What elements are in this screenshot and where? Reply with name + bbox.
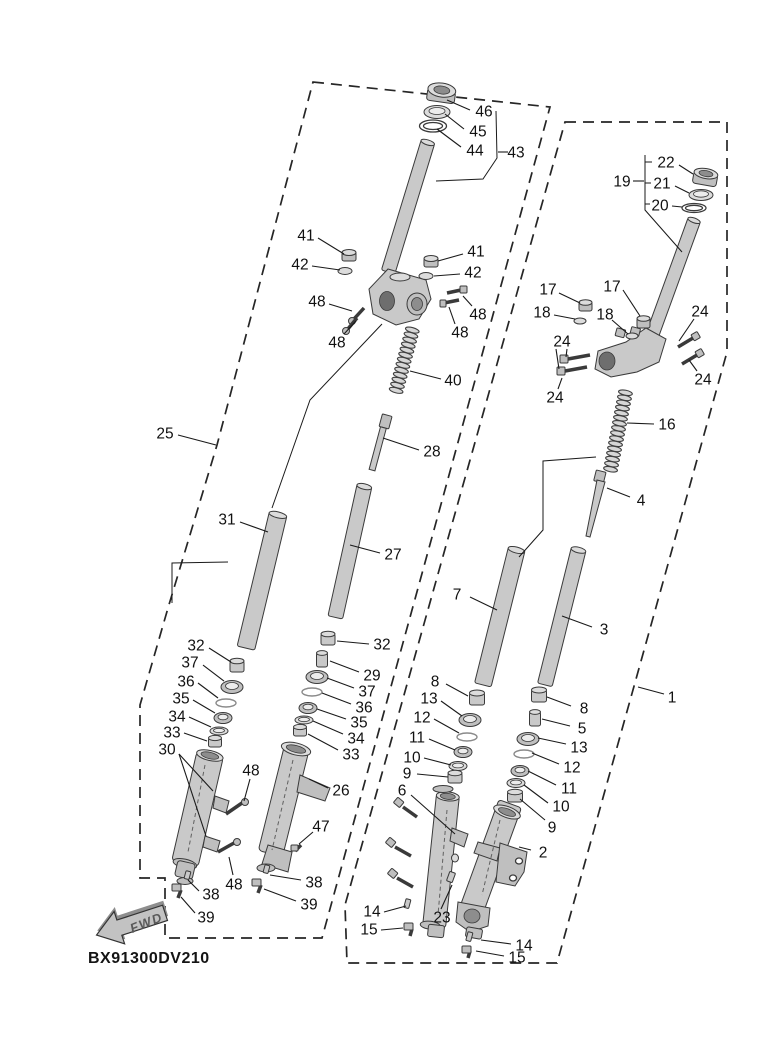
part-label-40: 40: [444, 373, 462, 390]
part-label-45: 45: [469, 124, 486, 141]
part-label-1: 1: [668, 690, 677, 707]
part-label-23: 23: [433, 910, 450, 927]
part-label-16: 16: [658, 417, 675, 434]
part-label-13: 13: [570, 740, 587, 757]
washer-18-left: [574, 318, 586, 324]
part-label-17: 17: [539, 282, 556, 299]
part-label-27: 27: [384, 547, 401, 564]
part-label-10: 10: [403, 750, 421, 767]
part-label-37: 37: [358, 684, 375, 701]
part-label-9: 9: [548, 820, 557, 837]
part-label-22: 22: [657, 155, 674, 172]
part-label-11: 11: [561, 781, 577, 798]
part-label-32: 32: [187, 638, 204, 655]
oil-seal-13-left: [459, 714, 481, 727]
part-label-17: 17: [603, 279, 620, 296]
washer-21: [689, 190, 713, 201]
part-label-30: 30: [158, 742, 176, 759]
o-ring-44: [420, 120, 447, 132]
seal-11-left: [454, 747, 472, 758]
cap-17-left: [579, 300, 592, 311]
part-label-11: 11: [409, 730, 425, 747]
part-label-47: 47: [312, 819, 329, 836]
part-label-33: 33: [342, 747, 359, 764]
washer-10-left: [449, 762, 467, 771]
part-label-24: 24: [694, 372, 712, 389]
part-label-2: 2: [539, 845, 548, 862]
cap-41-right: [424, 256, 438, 268]
exploded-parts-diagram: 4645444341424142484848484025312827323736…: [0, 0, 770, 1064]
part-label-42: 42: [464, 265, 481, 282]
part-label-41: 41: [467, 244, 484, 261]
washer-42-left: [338, 268, 352, 275]
part-label-20: 20: [651, 198, 669, 215]
part-label-32: 32: [373, 637, 390, 654]
part-label-24: 24: [691, 304, 709, 321]
part-label-44: 44: [466, 143, 484, 160]
part-label-43: 43: [507, 145, 524, 162]
part-label-24: 24: [546, 390, 564, 407]
part-label-34: 34: [347, 731, 365, 748]
part-label-39: 39: [197, 910, 214, 927]
part-label-37: 37: [181, 655, 198, 672]
part-label-48: 48: [451, 325, 468, 342]
spacer-33-left: [209, 735, 222, 747]
part-label-12: 12: [563, 760, 580, 777]
cap-17-right: [637, 316, 650, 328]
washer-34-left: [210, 727, 228, 735]
part-label-46: 46: [475, 104, 492, 121]
seal-11-right: [511, 766, 529, 777]
part-label-34: 34: [168, 709, 186, 726]
page-background: [0, 0, 770, 1064]
spacer-9-left: [448, 770, 462, 783]
washer-10-right: [507, 779, 525, 788]
part-label-18: 18: [533, 305, 550, 322]
part-label-48: 48: [225, 877, 242, 894]
collar-5: [530, 710, 541, 726]
washer-42-right: [419, 273, 433, 280]
washer-34-right: [295, 716, 313, 724]
part-label-5: 5: [578, 721, 587, 738]
part-label-36: 36: [177, 674, 194, 691]
part-label-28: 28: [423, 444, 440, 461]
part-label-21: 21: [653, 176, 670, 193]
part-label-42: 42: [291, 257, 308, 274]
parts-catalog-page: 4645444341424142484848484025312827323736…: [0, 0, 770, 1064]
seal-35-right: [299, 703, 317, 714]
part-label-48: 48: [469, 307, 486, 324]
bushing-32-left: [230, 658, 244, 672]
part-label-48: 48: [242, 763, 259, 780]
bushing-32-right: [321, 631, 335, 645]
part-label-25: 25: [156, 426, 173, 443]
part-label-35: 35: [350, 715, 367, 732]
part-label-8: 8: [580, 701, 589, 718]
part-label-35: 35: [172, 691, 189, 708]
part-label-38: 38: [305, 875, 322, 892]
o-ring-20: [682, 204, 706, 213]
cap-41-left: [342, 250, 356, 262]
part-label-3: 3: [600, 622, 609, 639]
bushing-8-left: [470, 690, 485, 705]
oil-seal-13-right: [517, 733, 539, 746]
diagram-code: BX91300DV210: [88, 950, 210, 967]
part-label-48: 48: [308, 294, 325, 311]
part-label-48: 48: [328, 335, 345, 352]
part-label-26: 26: [332, 783, 349, 800]
part-label-10: 10: [552, 799, 570, 816]
part-label-7: 7: [453, 587, 462, 604]
part-label-18: 18: [596, 307, 613, 324]
part-label-6: 6: [398, 783, 407, 800]
seal-35-left: [214, 713, 232, 724]
part-label-12: 12: [413, 710, 430, 727]
part-label-39: 39: [300, 897, 317, 914]
part-label-41: 41: [297, 228, 314, 245]
part-label-4: 4: [637, 493, 646, 510]
part-label-33: 33: [163, 725, 180, 742]
part-label-8: 8: [431, 674, 440, 691]
part-label-13: 13: [420, 691, 437, 708]
oil-seal-37-left: [221, 681, 243, 694]
part-label-24: 24: [553, 334, 571, 351]
collar-29: [317, 651, 328, 667]
spacer-9-right: [508, 789, 523, 802]
part-label-19: 19: [613, 174, 630, 191]
oil-seal-37-right: [306, 671, 328, 684]
part-label-38: 38: [202, 887, 219, 904]
bushing-8-right: [532, 687, 547, 702]
spacer-33-right: [294, 724, 307, 736]
washer-45: [424, 106, 450, 119]
part-label-29: 29: [363, 668, 380, 685]
part-label-14: 14: [363, 904, 381, 921]
part-label-31: 31: [218, 512, 235, 529]
part-label-9: 9: [403, 766, 412, 783]
part-label-15: 15: [508, 950, 525, 967]
part-label-15: 15: [360, 922, 377, 939]
